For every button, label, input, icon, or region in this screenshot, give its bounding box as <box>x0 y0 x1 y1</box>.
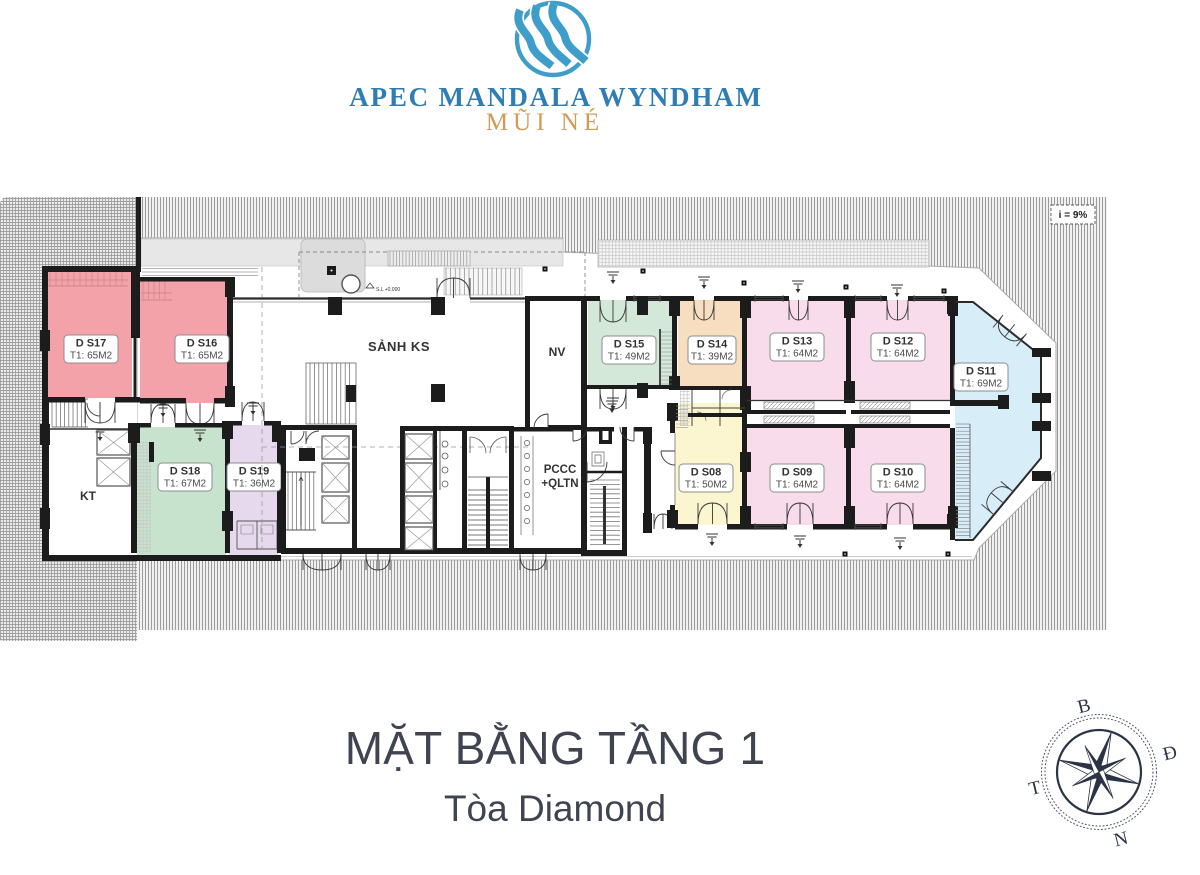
svg-text:+QLTN: +QLTN <box>541 478 578 490</box>
svg-text:D S09: D S09 <box>782 467 813 479</box>
svg-text:T1: 64M2: T1: 64M2 <box>776 349 819 360</box>
svg-text:T1: 65M2: T1: 65M2 <box>181 351 224 362</box>
svg-text:D S14: D S14 <box>697 339 728 351</box>
svg-text:T1: 50M2: T1: 50M2 <box>685 480 728 491</box>
svg-text:MẶT BẰNG TẦNG 1: MẶT BẰNG TẦNG 1 <box>345 722 766 774</box>
svg-text:D S19: D S19 <box>239 466 270 478</box>
svg-text:T1: 64M2: T1: 64M2 <box>776 480 819 491</box>
svg-text:T1: 39M2: T1: 39M2 <box>691 352 734 363</box>
svg-text:MŨI NÉ: MŨI NÉ <box>486 108 604 136</box>
svg-text:KT: KT <box>80 489 97 503</box>
svg-text:T1: 69M2: T1: 69M2 <box>960 379 1003 390</box>
svg-text:i = 9%: i = 9% <box>1059 210 1088 221</box>
svg-text:T1: 64M2: T1: 64M2 <box>877 480 920 491</box>
svg-text:T1: 36M2: T1: 36M2 <box>233 479 276 490</box>
svg-text:T1: 65M2: T1: 65M2 <box>70 351 113 362</box>
svg-text:D S15: D S15 <box>614 339 645 351</box>
svg-text:T: T <box>1027 777 1044 800</box>
svg-text:N: N <box>1112 828 1131 852</box>
svg-text:D S16: D S16 <box>187 338 218 350</box>
svg-text:Tòa Diamond: Tòa Diamond <box>444 788 666 829</box>
svg-text:D S18: D S18 <box>170 466 201 478</box>
svg-text:D S08: D S08 <box>691 467 722 479</box>
svg-text:APEC MANDALA WYNDHAM: APEC MANDALA WYNDHAM <box>349 82 763 112</box>
svg-text:B: B <box>1075 695 1092 718</box>
svg-text:T1: 67M2: T1: 67M2 <box>164 479 207 490</box>
svg-text:T1: 49M2: T1: 49M2 <box>608 352 651 363</box>
svg-text:D S17: D S17 <box>76 338 107 350</box>
svg-text:D S12: D S12 <box>883 336 914 348</box>
svg-text:NV: NV <box>549 345 566 359</box>
svg-text:SẢNH KS: SẢNH KS <box>368 339 430 354</box>
svg-text:D S10: D S10 <box>883 467 914 479</box>
svg-text:S.L +0.000: S.L +0.000 <box>376 287 400 293</box>
svg-text:D S13: D S13 <box>782 336 813 348</box>
svg-text:T1: 64M2: T1: 64M2 <box>877 349 920 360</box>
svg-text:Đ: Đ <box>1161 742 1179 766</box>
svg-text:D S11: D S11 <box>966 366 996 378</box>
svg-text:PCCC: PCCC <box>544 464 577 476</box>
